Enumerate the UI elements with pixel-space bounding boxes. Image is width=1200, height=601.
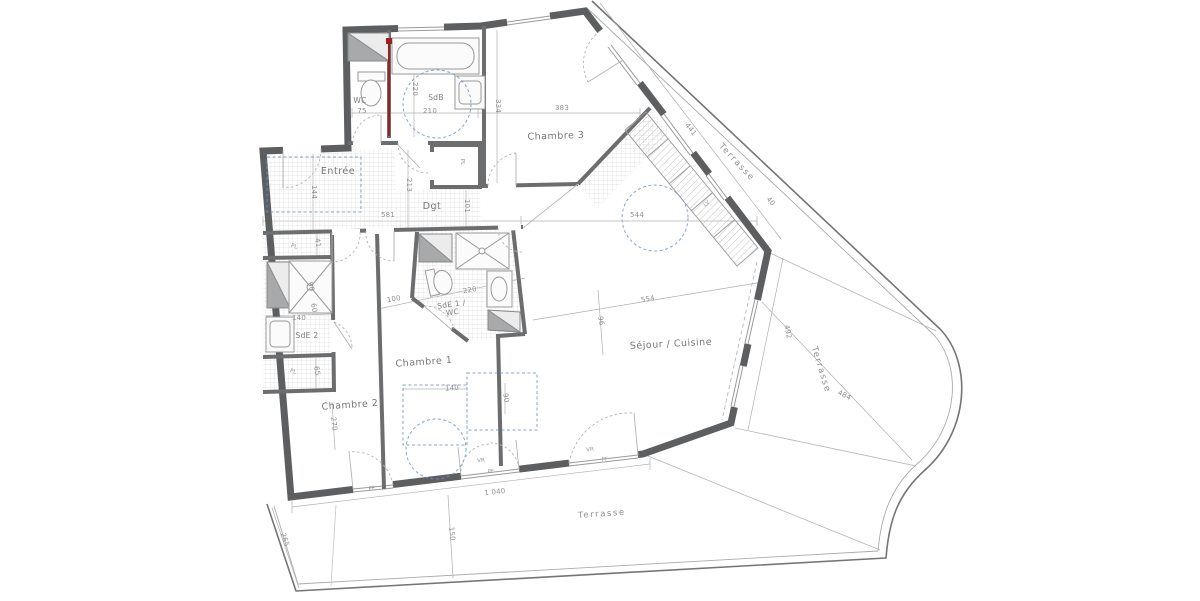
floor-plan-canvas: EntréeWCSdBChambre 3DgtPLSdE 1 / WCSdE 2… [0, 0, 1200, 601]
toilet-wc [358, 72, 385, 106]
dimension-lines [263, 3, 912, 588]
kitchen-counter [625, 112, 758, 266]
shower-sde2 [289, 261, 332, 313]
washbasin-sde1 [487, 271, 512, 307]
washbasin-sde2 [266, 317, 294, 352]
wall-openings [283, 16, 758, 492]
shower-sde1 [456, 233, 509, 269]
bathtub [392, 38, 479, 74]
chambre1-circle [406, 419, 466, 479]
washbasin-sdb [455, 76, 485, 109]
chambre1-wardrobe-outline [467, 373, 537, 430]
bed-outline [403, 385, 467, 445]
floor-plan-drawing [0, 0, 1200, 601]
